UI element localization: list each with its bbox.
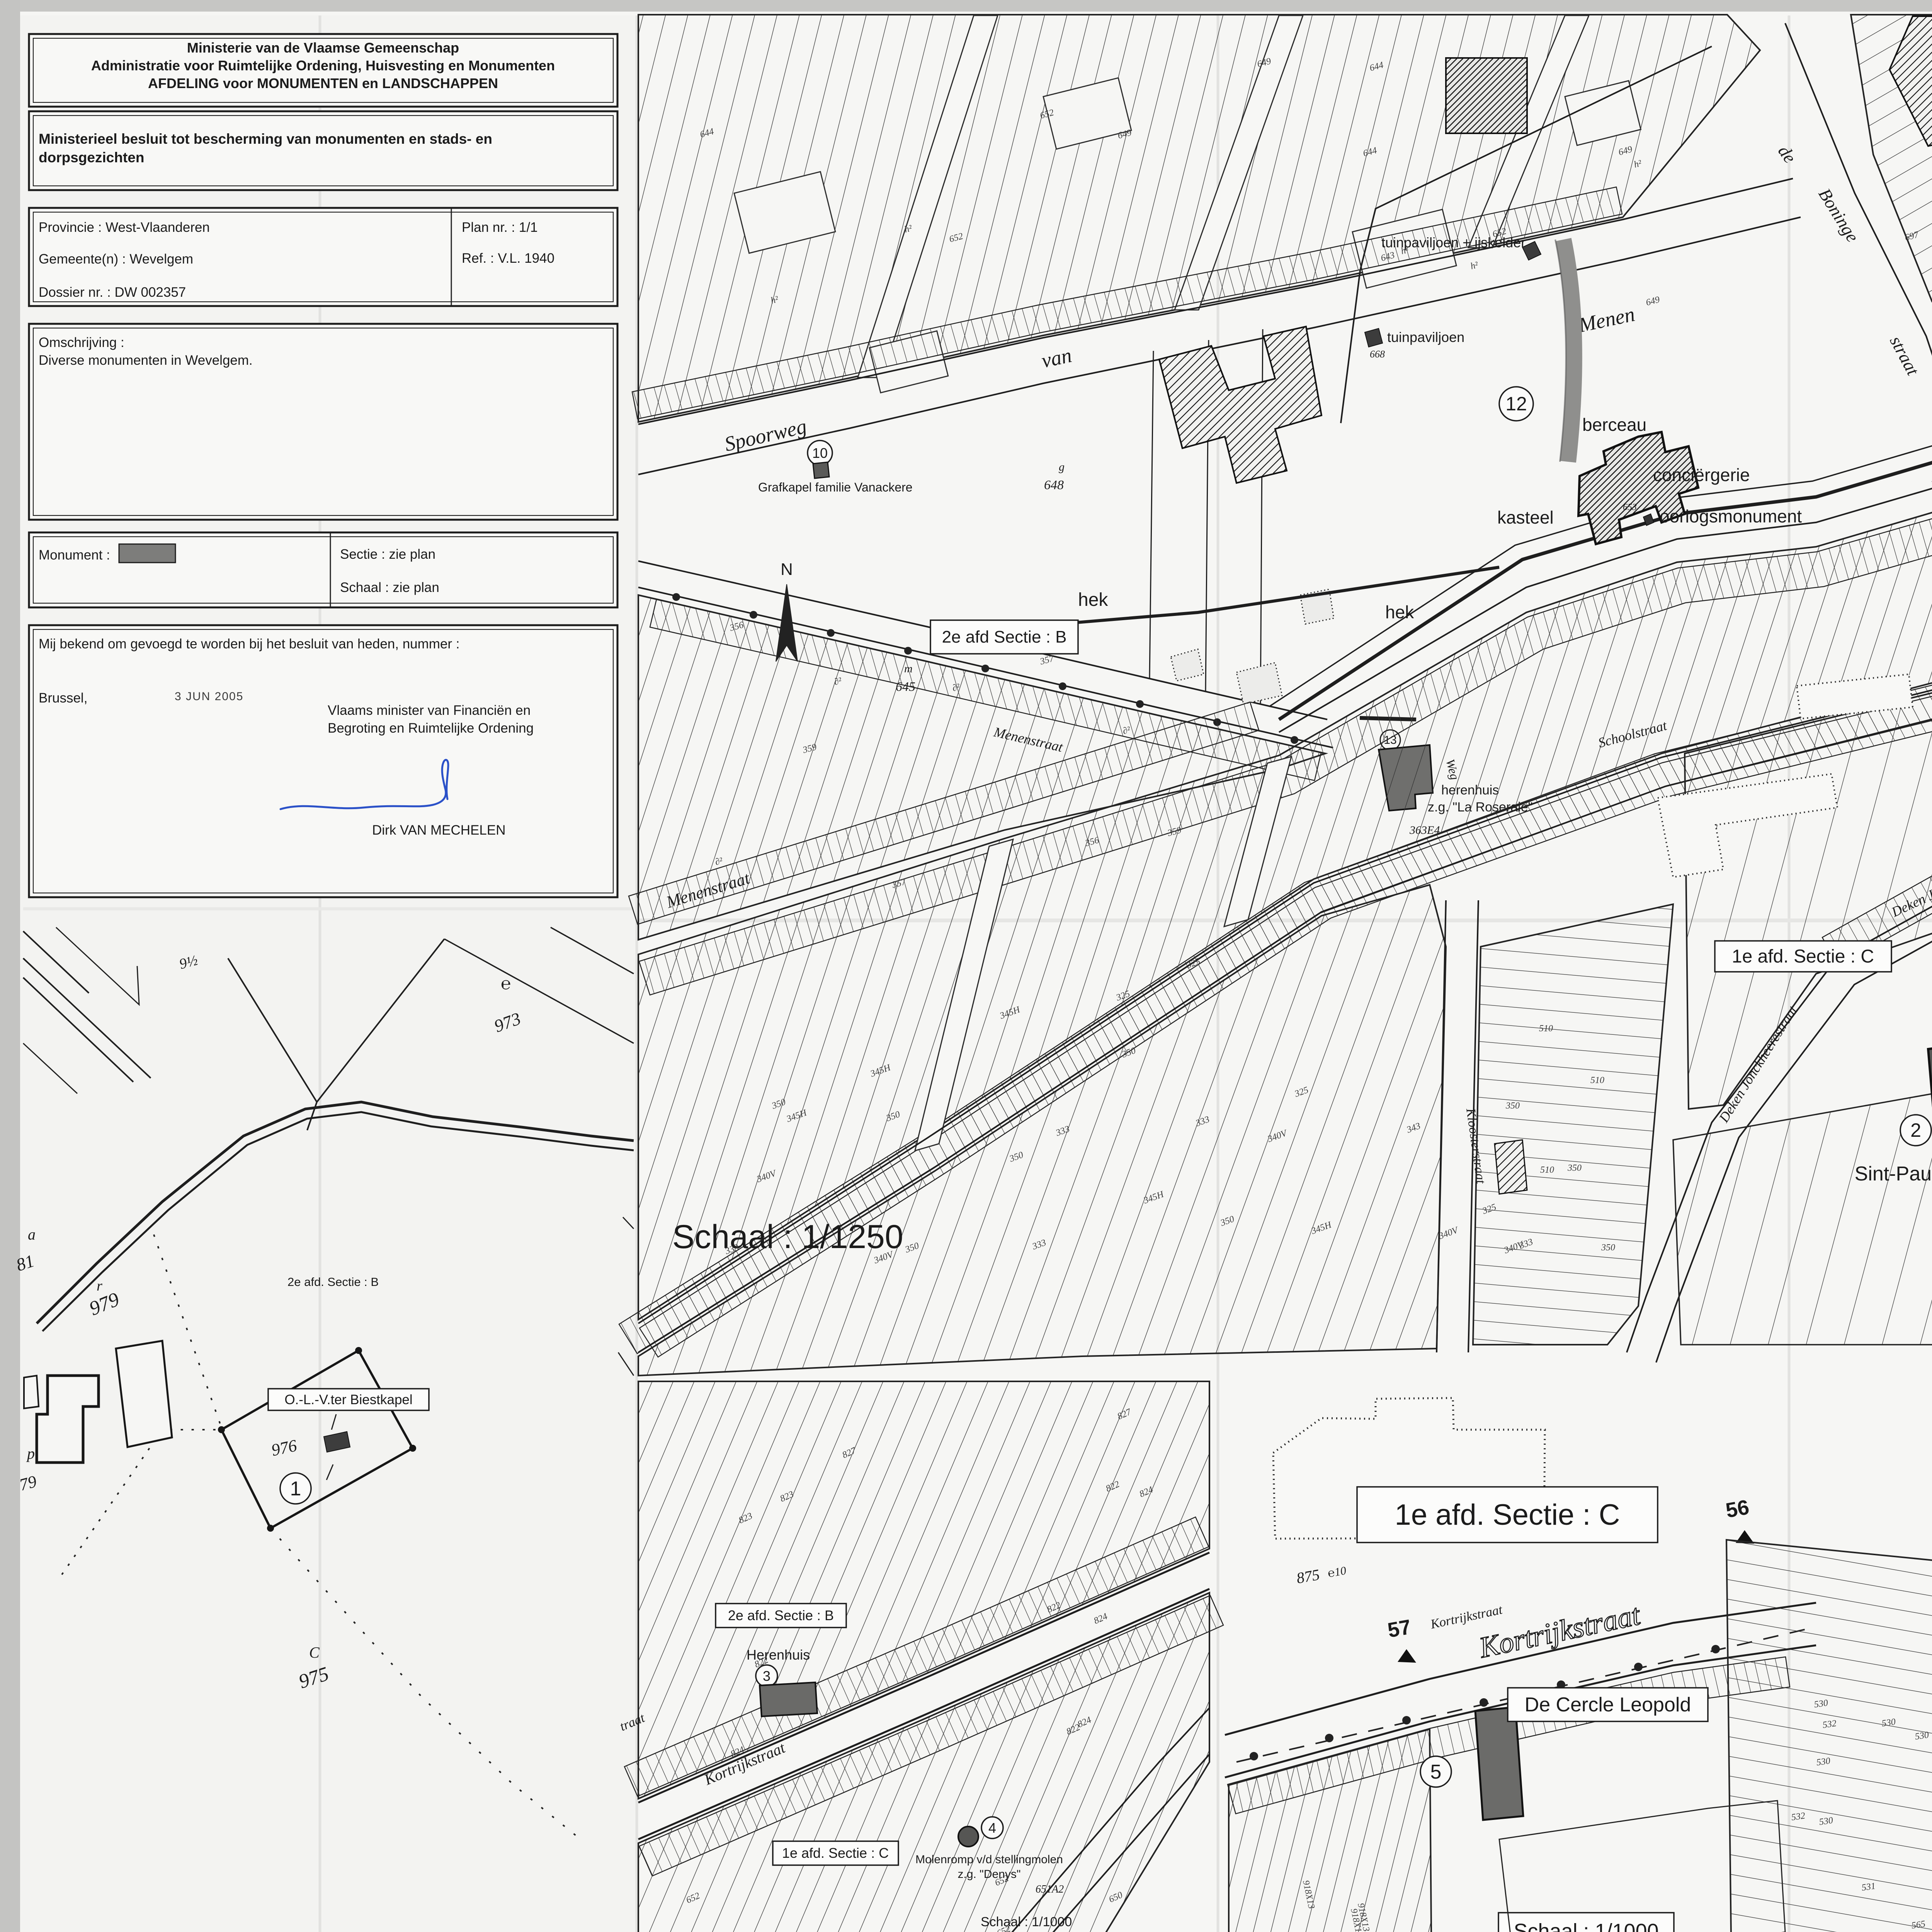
svg-text:510: 510 (1540, 1165, 1554, 1175)
svg-text:648: 648 (1044, 478, 1064, 492)
svg-text:conciërgerie: conciërgerie (1653, 465, 1750, 485)
svg-text:Vlaams minister van Financiën: Vlaams minister van Financiën en (328, 703, 531, 718)
svg-text:Dossier nr. : DW 002357: Dossier nr. : DW 002357 (39, 285, 186, 300)
svg-text:berceau: berceau (1582, 415, 1646, 435)
svg-text:tuinpaviljoen: tuinpaviljoen (1387, 329, 1464, 345)
svg-text:651A2: 651A2 (1036, 1883, 1064, 1895)
svg-text:350: 350 (1567, 1163, 1582, 1173)
svg-text:350: 350 (1601, 1243, 1615, 1253)
svg-text:Schaal : zie plan: Schaal : zie plan (340, 580, 439, 595)
svg-text:Schaal : 1/1000: Schaal : 1/1000 (1514, 1920, 1658, 1932)
svg-text:Grafkapel familie Vanackere: Grafkapel familie Vanackere (758, 480, 913, 494)
svg-text:Diverse monumenten in Wevelgem: Diverse monumenten in Wevelgem. (39, 353, 253, 368)
svg-text:350: 350 (1505, 1101, 1520, 1111)
svg-text:z.g. "Denys": z.g. "Denys" (957, 1868, 1020, 1881)
svg-text:2e afd Sectie : B: 2e afd Sectie : B (942, 628, 1067, 646)
svg-text:p: p (26, 1445, 35, 1462)
svg-text:3: 3 (763, 1668, 770, 1684)
svg-text:3 JUN 2005: 3 JUN 2005 (175, 690, 243, 703)
svg-text:2: 2 (1910, 1119, 1921, 1141)
svg-text:668: 668 (1370, 349, 1385, 360)
svg-text:Schaal : 1/1000: Schaal : 1/1000 (981, 1915, 1072, 1929)
svg-text:1e afd. Sectie : C: 1e afd. Sectie : C (1395, 1498, 1620, 1531)
svg-text:Mij bekend om gevoegd te worde: Mij bekend om gevoegd te worden bij het … (39, 636, 460, 651)
svg-text:653: 653 (1623, 502, 1637, 512)
svg-text:510: 510 (1539, 1024, 1553, 1034)
svg-text:Sint-Pauluscollege: Sint-Pauluscollege (1855, 1163, 1932, 1185)
svg-text:1e afd. Sectie : C: 1e afd. Sectie : C (1732, 946, 1874, 967)
svg-text:56: 56 (1724, 1495, 1751, 1522)
svg-text:Provincie : West-Vlaanderen: Provincie : West-Vlaanderen (39, 220, 210, 235)
svg-text:Administratie voor Ruimtelijke: Administratie voor Ruimtelijke Ordening,… (91, 58, 555, 73)
svg-text:Brussel,: Brussel, (39, 690, 87, 706)
svg-text:Molenromp v/d stellingmolen: Molenromp v/d stellingmolen (915, 1853, 1063, 1866)
svg-text:dorpsgezichten: dorpsgezichten (39, 150, 144, 165)
svg-text:Monument :: Monument : (39, 548, 110, 563)
svg-text:510: 510 (1590, 1075, 1604, 1085)
svg-text:oorlogsmonument: oorlogsmonument (1660, 506, 1802, 526)
svg-text:C: C (309, 1644, 320, 1661)
svg-text:Ministerieel besluit tot besch: Ministerieel besluit tot bescherming van… (39, 131, 492, 147)
svg-text:hek: hek (1078, 590, 1108, 610)
svg-text:12: 12 (1505, 393, 1527, 415)
svg-text:1e afd. Sectie : C: 1e afd. Sectie : C (782, 1845, 889, 1861)
svg-text:10: 10 (812, 445, 828, 461)
svg-text:Begroting en Ruimtelijke Orden: Begroting en Ruimtelijke Ordening (328, 721, 534, 736)
svg-text:1: 1 (290, 1478, 301, 1500)
svg-text:a: a (28, 1226, 36, 1243)
svg-text:Sectie : zie plan: Sectie : zie plan (340, 547, 435, 562)
svg-text:Dirk VAN MECHELEN: Dirk VAN MECHELEN (372, 823, 506, 838)
svg-text:5: 5 (1430, 1761, 1442, 1783)
svg-text:Schaal : 1/1250: Schaal : 1/1250 (672, 1218, 903, 1255)
svg-text:Omschrijving :: Omschrijving : (39, 335, 124, 350)
svg-text:g: g (1059, 461, 1065, 473)
svg-text:r: r (97, 1278, 102, 1294)
svg-text:Plan nr. : 1/1: Plan nr. : 1/1 (462, 220, 538, 235)
svg-text:Ref. : V.L. 1940: Ref. : V.L. 1940 (462, 251, 554, 266)
svg-text:N: N (781, 560, 793, 579)
svg-text:Ministerie van de Vlaamse Geme: Ministerie van de Vlaamse Gemeenschap (187, 40, 459, 56)
svg-text:℮: ℮ (501, 974, 511, 993)
svg-text:Gemeente(n) : Wevelgem: Gemeente(n) : Wevelgem (39, 252, 193, 267)
svg-text:kasteel: kasteel (1497, 507, 1554, 527)
svg-text:O.-L.-V.ter Biestkapel: O.-L.-V.ter Biestkapel (284, 1392, 412, 1407)
svg-text:AFDELING voor MONUMENTEN en LA: AFDELING voor MONUMENTEN en LANDSCHAPPEN (148, 75, 498, 91)
svg-text:De Cercle Leopold: De Cercle Leopold (1525, 1694, 1691, 1716)
svg-text:Herenhuis: Herenhuis (747, 1647, 810, 1663)
svg-text:4: 4 (988, 1820, 996, 1836)
svg-text:57: 57 (1386, 1615, 1413, 1642)
svg-text:hek: hek (1385, 602, 1414, 622)
svg-text:2e afd. Sectie : B: 2e afd. Sectie : B (728, 1607, 834, 1623)
svg-text:2e afd. Sectie : B: 2e afd. Sectie : B (287, 1275, 379, 1289)
